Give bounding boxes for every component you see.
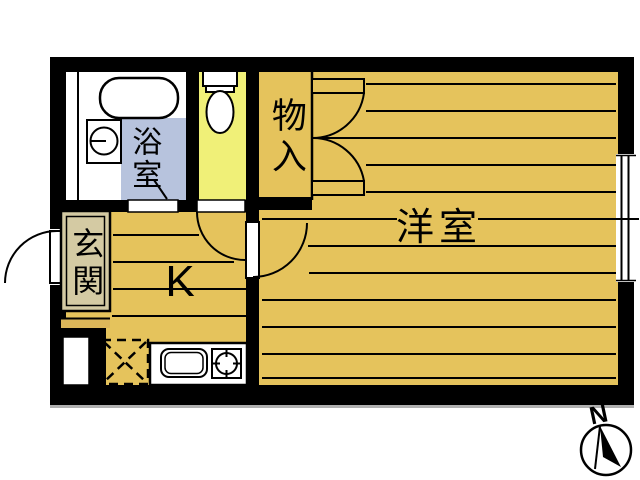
toilet-bowl-icon [207, 91, 234, 133]
bathroom-floor [121, 118, 186, 202]
floor-plan: N 浴室 物入 玄関 洋室 K [0, 0, 640, 480]
entrance-mat-outer [61, 211, 110, 311]
bathtub-icon [100, 78, 178, 118]
closet-door-leaf-bottom [312, 181, 364, 195]
wall-top [50, 57, 634, 72]
kitchen-sink-basin [165, 353, 203, 374]
wall-bottom [50, 385, 634, 405]
bathroom-door-opening [128, 200, 178, 212]
pipe-space-box [63, 337, 89, 385]
toilet-door-opening [197, 200, 245, 212]
wall-bottom-shadow [50, 405, 634, 408]
wall-closet-bottom [258, 197, 312, 210]
toilet-tank-icon [203, 71, 237, 86]
room-door-leaf [246, 222, 259, 278]
compass: N [581, 399, 631, 475]
wall-bath-toilet [186, 72, 199, 212]
floor-plan-drawing: N [0, 0, 640, 480]
closet-door-leaf-top [312, 79, 364, 93]
entrance-step [61, 319, 110, 328]
